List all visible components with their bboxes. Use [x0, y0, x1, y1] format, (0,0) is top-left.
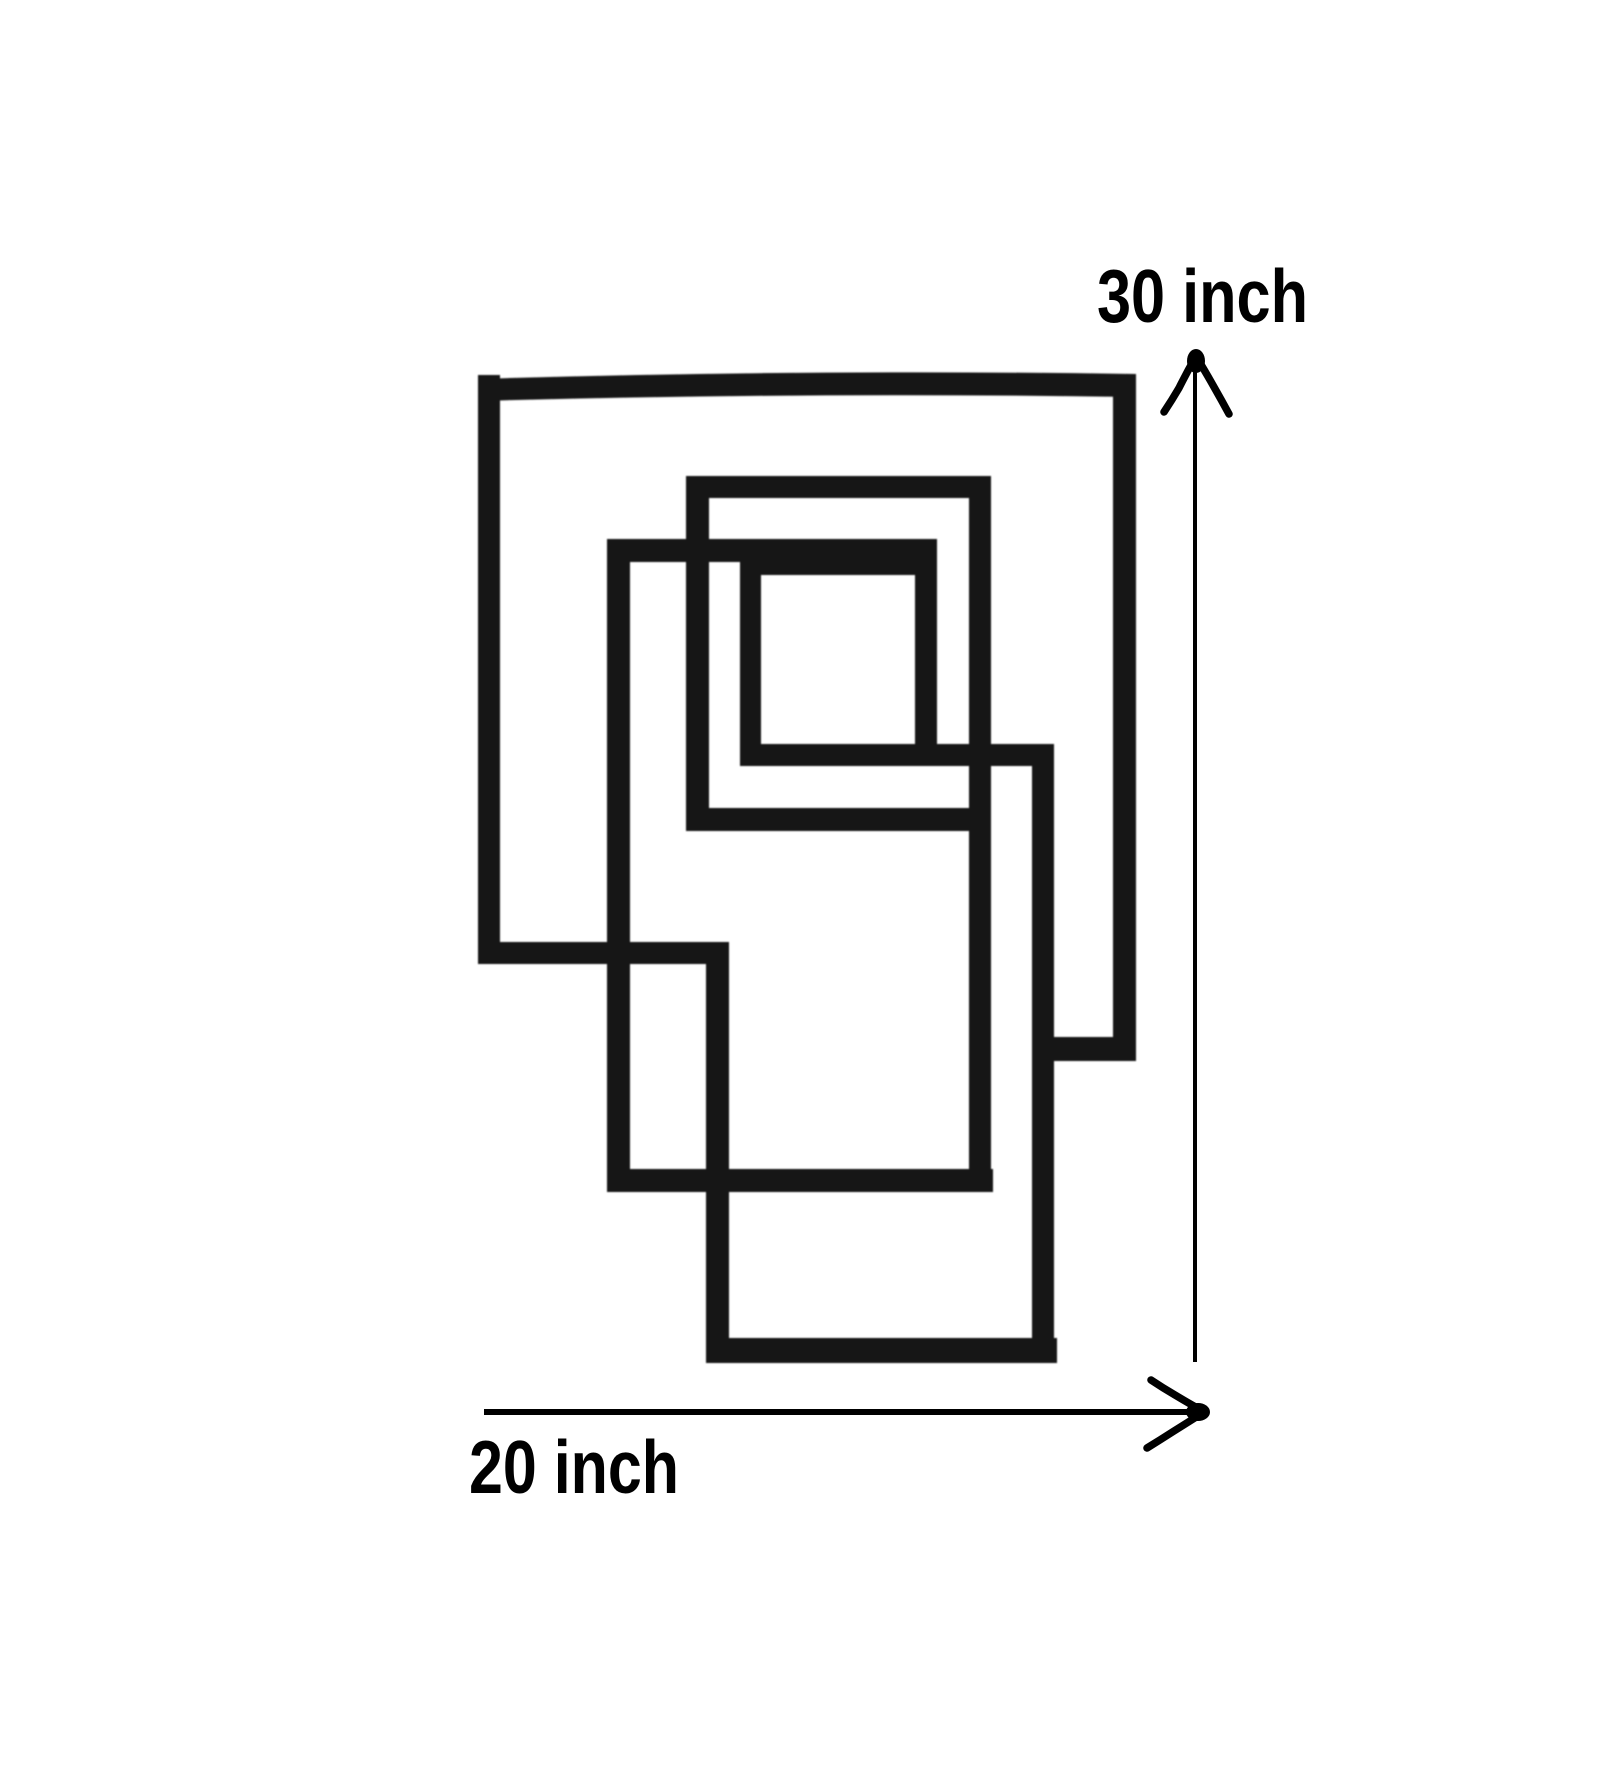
- svg-text:20 inch: 20 inch: [469, 1425, 679, 1509]
- svg-text:30 inch: 30 inch: [1097, 254, 1308, 338]
